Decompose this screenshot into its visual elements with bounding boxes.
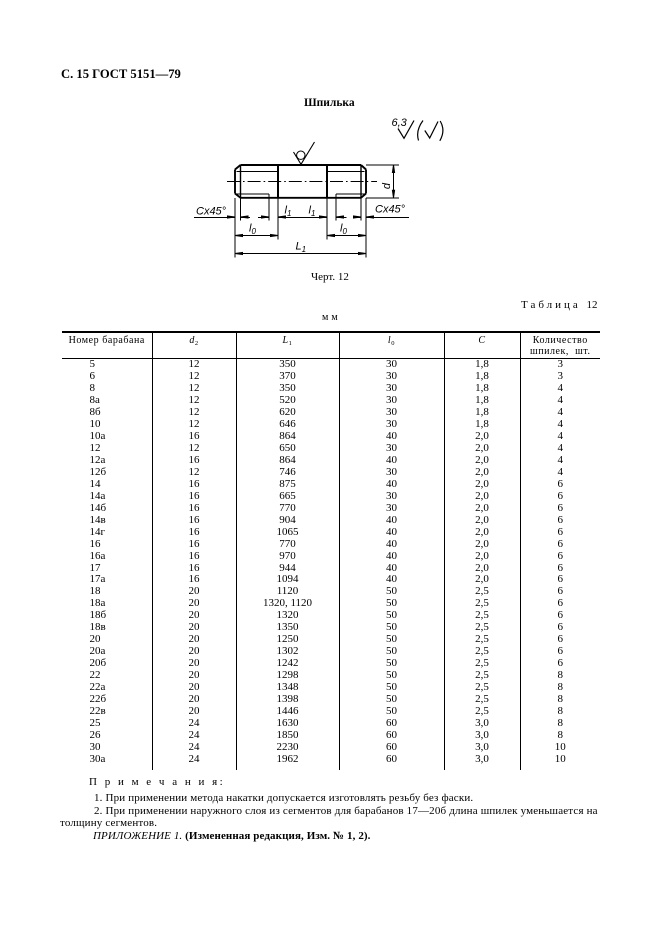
svg-text:d: d <box>381 182 393 189</box>
svg-text:6,3: 6,3 <box>392 117 408 129</box>
svg-text:l0: l0 <box>249 223 256 237</box>
svg-text:l1: l1 <box>285 205 292 219</box>
svg-text:L1: L1 <box>296 241 307 255</box>
svg-text:Cx45°: Cx45° <box>375 204 406 216</box>
svg-text:l0: l0 <box>340 223 347 237</box>
svg-text:Cx45°: Cx45° <box>196 206 227 218</box>
svg-text:l1: l1 <box>309 205 316 219</box>
